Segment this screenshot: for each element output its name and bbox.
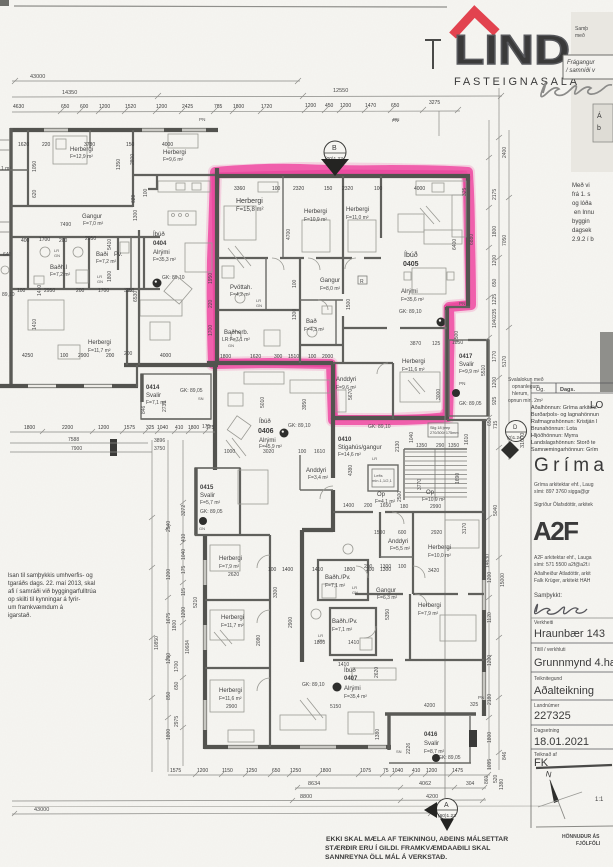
svg-text:650: 650 <box>492 278 498 287</box>
svg-text:F=10,9 m²: F=10,9 m² <box>422 497 445 503</box>
svg-text:620: 620 <box>32 189 38 198</box>
svg-text:/ samníði v: / samníði v <box>565 68 596 74</box>
svg-text:4700: 4700 <box>286 229 292 240</box>
svg-text:2320: 2320 <box>293 186 304 192</box>
svg-text:43000: 43000 <box>30 74 45 80</box>
svg-text:Gangur: Gangur <box>376 588 396 594</box>
svg-text:um framkvæmdum á: um framkvæmdum á <box>8 605 64 611</box>
svg-text:270/300/ 175mm: 270/300/ 175mm <box>430 431 459 435</box>
svg-text:Herbergi: Herbergi <box>304 209 327 215</box>
svg-text:1475: 1475 <box>452 768 463 774</box>
svg-text:Með vi: Með vi <box>572 182 590 189</box>
svg-text:F=7,2 m²: F=7,2 m² <box>96 259 116 265</box>
svg-text:100: 100 <box>308 354 317 360</box>
svg-text:STÆRÐIR ERU Í GILDI. FRAMKVÆMD: STÆRÐIR ERU Í GILDI. FRAMKVÆMDAAÐILI SKA… <box>325 843 490 852</box>
svg-text:F=14,6 m²: F=14,6 m² <box>338 452 361 458</box>
svg-text:5150: 5150 <box>330 704 341 710</box>
svg-text:3272: 3272 <box>181 505 187 516</box>
svg-text:1040: 1040 <box>492 317 498 328</box>
svg-text:Anddyri: Anddyri <box>306 468 326 474</box>
svg-text:600: 600 <box>398 530 407 536</box>
svg-text:4250: 4250 <box>22 353 33 359</box>
svg-text:0407: 0407 <box>344 676 358 682</box>
svg-text:1410: 1410 <box>338 662 349 668</box>
svg-text:925: 925 <box>492 396 498 405</box>
svg-text:12550: 12550 <box>333 88 348 94</box>
svg-text:GK: 89,10: GK: 89,10 <box>368 424 391 430</box>
svg-text:1800: 1800 <box>320 768 331 774</box>
svg-text:Alrými: Alrými <box>344 686 361 692</box>
svg-text:2920: 2920 <box>431 530 442 536</box>
svg-text:Anddyri: Anddyri <box>388 539 408 545</box>
svg-text:2735: 2735 <box>162 401 168 412</box>
svg-text:2080: 2080 <box>256 635 262 646</box>
svg-text:og lóða: og lóða <box>572 200 592 207</box>
svg-text:1350: 1350 <box>116 159 122 170</box>
svg-text:GK: 89,05: GK: 89,05 <box>438 755 461 761</box>
svg-text:2320: 2320 <box>342 186 353 192</box>
svg-text:R: R <box>360 279 364 285</box>
svg-text:1500: 1500 <box>374 530 385 536</box>
svg-text:1610: 1610 <box>314 449 325 455</box>
svg-text:SANNREYNA ÖLL MÁL Á VERKSTAÐ.: SANNREYNA ÖLL MÁL Á VERKSTAÐ. <box>325 852 447 861</box>
svg-text:220: 220 <box>42 142 51 148</box>
svg-text:650: 650 <box>272 768 281 774</box>
svg-text:4380: 4380 <box>348 465 354 476</box>
svg-text:1350: 1350 <box>448 443 459 449</box>
svg-text:Baðh./Pv.: Baðh./Pv. <box>332 618 358 625</box>
svg-text:F=9,6 m²: F=9,6 m² <box>163 157 183 163</box>
svg-text:350: 350 <box>126 288 135 294</box>
svg-text:Baði: Baði <box>96 251 108 258</box>
svg-text:Bað: Bað <box>306 318 317 325</box>
svg-text:F=15,8 m²: F=15,8 m² <box>236 207 264 213</box>
svg-text:3275: 3275 <box>429 100 440 106</box>
svg-text:15000: 15000 <box>500 573 506 587</box>
svg-text:Herbergi: Herbergi <box>219 556 242 562</box>
svg-text:Burðarþols- og lagnahönnun: Burðarþols- og lagnahönnun <box>531 411 599 418</box>
svg-text:LR: LR <box>372 456 377 461</box>
svg-text:Herbergi: Herbergi <box>346 207 369 213</box>
svg-text:Herbergi: Herbergi <box>221 615 244 621</box>
svg-text:Falk Krüger, arkitekt HAH: Falk Krüger, arkitekt HAH <box>534 578 591 584</box>
svg-text:LIND: LIND <box>454 26 570 73</box>
svg-text:8800: 8800 <box>300 794 312 800</box>
svg-text:100: 100 <box>60 353 69 359</box>
svg-text:F=3,4 m²: F=3,4 m² <box>308 475 328 481</box>
svg-text:7588: 7588 <box>68 437 79 443</box>
svg-text:846: 846 <box>141 405 147 414</box>
svg-text:1800: 1800 <box>492 226 498 237</box>
svg-text:Baðh.l: Baðh.l <box>50 264 67 271</box>
svg-text:1250: 1250 <box>246 768 257 774</box>
svg-text:1225: 1225 <box>492 294 498 305</box>
svg-text:Op: Op <box>426 490 435 496</box>
svg-text:1200: 1200 <box>181 607 187 618</box>
svg-text:(60)1.23: (60)1.23 <box>438 813 456 819</box>
svg-text:PN: PN <box>459 381 465 386</box>
svg-text:2226: 2226 <box>406 743 412 754</box>
svg-text:1300: 1300 <box>380 564 391 570</box>
svg-text:F=10,9 m²: F=10,9 m² <box>304 217 327 223</box>
svg-text:opnun min. 2m²: opnun min. 2m² <box>508 398 543 404</box>
svg-text:2620: 2620 <box>228 572 239 578</box>
svg-text:785: 785 <box>214 104 223 110</box>
svg-text:89,10: 89,10 <box>2 292 15 298</box>
svg-text:2950: 2950 <box>44 288 55 294</box>
svg-text:með: með <box>575 32 585 39</box>
svg-text:2400: 2400 <box>502 147 508 158</box>
svg-text:1510: 1510 <box>288 354 299 360</box>
svg-text:Svalalokun með: Svalalokun með <box>508 376 544 383</box>
svg-text:6400: 6400 <box>452 239 458 250</box>
svg-text:Landnúmer: Landnúmer <box>534 703 560 709</box>
svg-text:3770: 3770 <box>417 479 423 490</box>
svg-text:1200: 1200 <box>426 768 437 774</box>
svg-text:Herbergi: Herbergi <box>163 150 186 156</box>
svg-text:1200: 1200 <box>487 572 493 583</box>
svg-text:1410: 1410 <box>37 285 43 296</box>
svg-text:F=11,6 m²: F=11,6 m² <box>402 367 425 373</box>
svg-text:2180: 2180 <box>487 694 493 705</box>
svg-text:Brunahönnun: Lota: Brunahönnun: Lota <box>531 426 577 432</box>
svg-text:Herbergi: Herbergi <box>418 603 441 609</box>
svg-text:4630: 4630 <box>13 104 24 110</box>
svg-text:3000: 3000 <box>436 389 442 400</box>
svg-text:1200: 1200 <box>166 569 172 580</box>
svg-text:1400: 1400 <box>282 567 293 573</box>
svg-text:GK: 89,10: GK: 89,10 <box>288 423 311 429</box>
svg-text:4000: 4000 <box>414 186 425 192</box>
svg-text:1200: 1200 <box>492 255 498 266</box>
svg-text:125: 125 <box>432 341 441 347</box>
svg-text:F=11,6 m²: F=11,6 m² <box>219 696 242 702</box>
svg-text:1800: 1800 <box>487 732 493 743</box>
svg-text:100: 100 <box>17 288 26 294</box>
svg-text:5040: 5040 <box>493 505 499 516</box>
svg-text:1150: 1150 <box>222 768 233 774</box>
svg-text:1300: 1300 <box>292 309 298 320</box>
svg-text:1575: 1575 <box>124 425 135 431</box>
svg-text:PN: PN <box>393 117 399 122</box>
svg-text:A2F: A2F <box>533 516 579 546</box>
svg-text:150: 150 <box>324 186 333 192</box>
svg-text:4062: 4062 <box>419 781 431 787</box>
svg-text:Dagsetning: Dagsetning <box>534 728 560 734</box>
svg-text:3420: 3420 <box>428 568 439 574</box>
svg-text:1200: 1200 <box>487 655 493 666</box>
svg-text:GK: 89,10: GK: 89,10 <box>399 309 422 315</box>
svg-text:1 m²: 1 m² <box>1 166 11 172</box>
svg-text:1700: 1700 <box>174 661 180 672</box>
svg-text:3750: 3750 <box>154 446 165 452</box>
svg-text:2940: 2940 <box>166 521 172 532</box>
svg-text:F=10,0 m²: F=10,0 m² <box>428 553 451 559</box>
svg-text:SN: SN <box>198 396 204 401</box>
svg-text:1050: 1050 <box>32 161 38 172</box>
svg-text:1380: 1380 <box>499 779 505 790</box>
svg-text:1250: 1250 <box>290 768 301 774</box>
svg-text:235: 235 <box>492 308 498 317</box>
svg-text:1800: 1800 <box>172 620 178 631</box>
svg-text:0405: 0405 <box>403 261 419 268</box>
svg-text:3870: 3870 <box>410 341 421 347</box>
svg-text:Frágangur: Frágangur <box>567 60 596 66</box>
svg-text:Samræmingarhönnun: Grím: Samræmingarhönnun: Grím <box>531 447 599 453</box>
svg-text:650: 650 <box>61 104 70 110</box>
svg-text:175: 175 <box>181 565 187 574</box>
svg-text:sími: 571 5500 a2f@a2f.i: sími: 571 5500 a2f@a2f.i <box>534 562 590 568</box>
svg-text:Aðalhönnun: Gríma arkitekt: Aðalhönnun: Gríma arkitekt <box>531 404 597 411</box>
svg-text:lsan til samþykkis umhverfis-: lsan til samþykkis umhverfis- og <box>8 573 93 579</box>
svg-text:2.9.2 í b: 2.9.2 í b <box>572 237 594 243</box>
svg-text:Hraunbær 143: Hraunbær 143 <box>534 628 605 640</box>
svg-text:0404: 0404 <box>153 241 167 247</box>
svg-text:10850: 10850 <box>154 636 160 650</box>
svg-text:200: 200 <box>59 238 68 244</box>
svg-text:F=4,3 m²: F=4,3 m² <box>304 327 324 333</box>
svg-text:5210: 5210 <box>193 597 199 608</box>
svg-text:1800: 1800 <box>24 425 35 431</box>
svg-text:1200: 1200 <box>197 768 208 774</box>
svg-text:220: 220 <box>208 299 214 308</box>
svg-text:Pv.: Pv. <box>114 252 123 258</box>
svg-text:Herbergi: Herbergi <box>402 359 425 365</box>
svg-text:3170: 3170 <box>462 523 468 534</box>
svg-text:GK: 89,05: GK: 89,05 <box>200 509 223 515</box>
svg-text:F=5,5 m²: F=5,5 m² <box>390 546 410 552</box>
svg-text:1120: 1120 <box>487 612 493 623</box>
svg-text:igarstað.: igarstað. <box>8 612 31 619</box>
svg-text:1040: 1040 <box>181 549 187 560</box>
svg-text:F=7,9 m²: F=7,9 m² <box>418 611 438 617</box>
svg-text:PN: PN <box>199 117 205 122</box>
svg-text:Aðalheiður Atladóttir, arkit: Aðalheiður Atladóttir, arkit <box>534 570 591 577</box>
svg-text:F=35,4 m²: F=35,4 m² <box>344 694 367 700</box>
svg-text:A: A <box>444 802 449 809</box>
svg-text:Hljóðhönnun: Myrra: Hljóðhönnun: Myrra <box>531 432 578 439</box>
svg-text:1350: 1350 <box>416 443 427 449</box>
svg-text:SN: SN <box>396 749 402 754</box>
svg-text:F=7,0 m²: F=7,0 m² <box>83 221 103 227</box>
svg-text:100: 100 <box>374 186 383 192</box>
svg-text:200: 200 <box>106 353 115 359</box>
svg-text:tgaráðs dags. 22. maí 2013, sk: tgaráðs dags. 22. maí 2013, skal <box>8 580 95 587</box>
svg-text:100: 100 <box>272 186 281 192</box>
svg-text:4200: 4200 <box>426 794 438 800</box>
svg-text:GN: GN <box>256 303 262 308</box>
svg-text:2175: 2175 <box>492 189 498 200</box>
svg-text:2900: 2900 <box>288 617 294 628</box>
svg-text:Dags.: Dags. <box>560 387 575 393</box>
svg-text:D: D <box>513 425 518 431</box>
svg-text:1675: 1675 <box>166 613 172 624</box>
svg-text:Herbergi: Herbergi <box>428 545 451 551</box>
svg-text:1410: 1410 <box>312 567 323 573</box>
svg-text:860: 860 <box>484 775 490 784</box>
svg-text:1700: 1700 <box>98 288 109 294</box>
svg-text:op skilti til kynningar á fyri: op skilti til kynningar á fyrir- <box>8 597 80 603</box>
svg-text:0417: 0417 <box>459 354 473 360</box>
svg-text:HÖNNUÐUR ÁS: HÖNNUÐUR ÁS <box>562 833 600 840</box>
svg-text:1095: 1095 <box>487 759 493 770</box>
svg-text:31000: 31000 <box>520 433 526 448</box>
svg-text:650: 650 <box>174 681 180 690</box>
svg-text:Slig 18 þrep: Slig 18 þrep <box>430 426 450 430</box>
svg-text:14630: 14630 <box>485 554 491 568</box>
svg-text:14350: 14350 <box>62 90 77 96</box>
svg-text:Gangur: Gangur <box>320 278 340 284</box>
svg-text:2990: 2990 <box>430 504 441 510</box>
svg-text:1040: 1040 <box>409 432 415 443</box>
svg-text:1075: 1075 <box>360 768 371 774</box>
svg-text:Og.: Og. <box>536 387 545 393</box>
svg-text:en Innu: en Innu <box>574 210 594 216</box>
svg-text:43000: 43000 <box>34 807 49 813</box>
svg-text:Íbúð: Íbúð <box>259 418 271 425</box>
svg-text:Svalir: Svalir <box>424 741 439 747</box>
svg-text:Íbúð: Íbúð <box>404 250 418 259</box>
svg-text:F=7,1 m²: F=7,1 m² <box>325 583 345 589</box>
svg-text:Aðalteikning: Aðalteikning <box>534 685 594 697</box>
svg-text:GK: 89,10: GK: 89,10 <box>302 682 325 688</box>
svg-text:1650: 1650 <box>380 503 391 509</box>
svg-text:Herbergi: Herbergi <box>219 688 242 694</box>
svg-text:1700: 1700 <box>39 237 50 243</box>
svg-text:Á: Á <box>597 111 602 120</box>
svg-text:1575: 1575 <box>170 768 181 774</box>
svg-text:Íbúð: Íbúð <box>153 231 165 238</box>
svg-text:1400: 1400 <box>343 503 354 509</box>
svg-text:2000: 2000 <box>322 354 333 360</box>
svg-text:8634: 8634 <box>308 781 320 787</box>
svg-text:Samþykkt:: Samþykkt: <box>534 593 562 599</box>
svg-text:GN: GN <box>54 253 60 258</box>
svg-text:0416: 0416 <box>424 732 438 738</box>
svg-text:10684: 10684 <box>185 640 191 654</box>
svg-text:byggin: byggin <box>572 219 590 225</box>
svg-text:F=12,9 m²: F=12,9 m² <box>70 154 93 160</box>
svg-text:1380: 1380 <box>375 729 381 740</box>
svg-text:100: 100 <box>298 449 307 455</box>
svg-text:FJÖLFÖLI: FJÖLFÖLI <box>576 840 601 847</box>
svg-text:Pvöttah.: Pvöttah. <box>230 285 252 291</box>
svg-text:0415: 0415 <box>200 485 214 491</box>
svg-text:F=5,7 m²: F=5,7 m² <box>200 500 220 506</box>
svg-text:325: 325 <box>462 187 468 196</box>
svg-text:Alrými: Alrými <box>153 250 170 256</box>
svg-text:2500: 2500 <box>397 491 403 502</box>
svg-text:2900: 2900 <box>78 353 89 359</box>
svg-text:1610: 1610 <box>464 434 470 445</box>
svg-text:4200: 4200 <box>424 703 435 709</box>
svg-text:sími: 897 3760 sigga@gr: sími: 897 3760 sigga@gr <box>534 489 590 495</box>
svg-text:F=7,2 m²: F=7,2 m² <box>50 272 70 278</box>
svg-text:180: 180 <box>400 504 409 510</box>
svg-text:3020: 3020 <box>263 449 274 455</box>
svg-text:3780: 3780 <box>84 142 95 148</box>
svg-text:620: 620 <box>131 194 137 203</box>
svg-text:1410: 1410 <box>32 319 38 330</box>
svg-text:Rafmagnshönnun: Kristján I: Rafmagnshönnun: Kristján I <box>531 419 598 425</box>
svg-text:Alrými: Alrými <box>401 289 418 295</box>
svg-text:5350: 5350 <box>385 609 391 620</box>
svg-text:7490: 7490 <box>60 222 71 228</box>
svg-text:715: 715 <box>493 420 499 429</box>
svg-text:2800: 2800 <box>130 154 136 165</box>
svg-text:304: 304 <box>466 781 475 787</box>
svg-text:1800: 1800 <box>220 354 231 360</box>
svg-text:1800: 1800 <box>166 729 172 740</box>
svg-text:Baðherb.: Baðherb. <box>224 329 249 336</box>
svg-text:F=11,7 m²: F=11,7 m² <box>221 623 244 629</box>
svg-text:0410: 0410 <box>338 437 352 443</box>
svg-text:2975: 2975 <box>174 716 180 727</box>
svg-text:18.01.2021: 18.01.2021 <box>534 736 589 748</box>
svg-text:3360: 3360 <box>234 186 245 192</box>
svg-text:410: 410 <box>181 533 187 542</box>
svg-text:Svalir: Svalir <box>146 393 161 399</box>
svg-text:GN: GN <box>318 638 324 643</box>
svg-text:GN: GN <box>228 343 234 348</box>
svg-text:325: 325 <box>470 702 479 708</box>
svg-text:B: B <box>332 145 337 152</box>
svg-text:1300: 1300 <box>133 210 139 221</box>
svg-text:1800: 1800 <box>344 567 355 573</box>
svg-text:Herbergi: Herbergi <box>236 198 263 205</box>
svg-text:Teiknitegund: Teiknitegund <box>534 676 562 682</box>
svg-text:150: 150 <box>126 142 135 148</box>
svg-text:5010: 5010 <box>260 397 266 408</box>
svg-text:200: 200 <box>76 288 85 294</box>
svg-text:227325: 227325 <box>534 710 571 722</box>
svg-text:Gríma arkitektar ehf., Laug: Gríma arkitektar ehf., Laug <box>534 482 594 488</box>
svg-text:200: 200 <box>364 503 373 509</box>
svg-text:frá 1. s: frá 1. s <box>572 192 590 198</box>
svg-text:afi í samráði við byggingarful: afi í samráði við byggingarfulltrúa <box>8 588 97 595</box>
svg-text:3950: 3950 <box>302 399 308 410</box>
svg-text:F=6,3 m²: F=6,3 m² <box>377 595 397 601</box>
svg-text:7050: 7050 <box>502 235 508 246</box>
svg-text:F=8,0 m²: F=8,0 m² <box>320 286 340 292</box>
svg-text:Verkheiti: Verkheiti <box>534 620 553 626</box>
svg-text:846: 846 <box>502 751 508 760</box>
svg-text:GK: 89,05: GK: 89,05 <box>459 401 482 407</box>
svg-text:400: 400 <box>21 238 30 244</box>
svg-text:2620: 2620 <box>374 667 380 678</box>
svg-text:Íbúð: Íbúð <box>344 667 356 674</box>
svg-text:4000: 4000 <box>160 353 171 359</box>
svg-text:1200: 1200 <box>166 653 172 664</box>
svg-text:5410: 5410 <box>107 239 113 250</box>
svg-text:1200: 1200 <box>492 377 498 388</box>
svg-text:Titill / verkhluti: Titill / verkhluti <box>534 647 566 653</box>
svg-text:2950: 2950 <box>85 236 96 242</box>
svg-text:115: 115 <box>181 588 187 596</box>
svg-text:850: 850 <box>166 691 172 700</box>
svg-text:2130: 2130 <box>395 441 401 452</box>
svg-text:F=35,6 m²: F=35,6 m² <box>401 297 424 303</box>
svg-text:GN: GN <box>97 279 103 284</box>
svg-text:0414: 0414 <box>146 385 160 391</box>
svg-text:b: b <box>597 125 601 132</box>
svg-text:5670: 5670 <box>348 389 354 400</box>
svg-text:6880: 6880 <box>469 234 475 245</box>
svg-text:100: 100 <box>398 564 407 570</box>
svg-text:F=11,0 m²: F=11,0 m² <box>346 215 369 221</box>
svg-text:1690: 1690 <box>455 473 461 484</box>
svg-text:1000: 1000 <box>224 449 235 455</box>
